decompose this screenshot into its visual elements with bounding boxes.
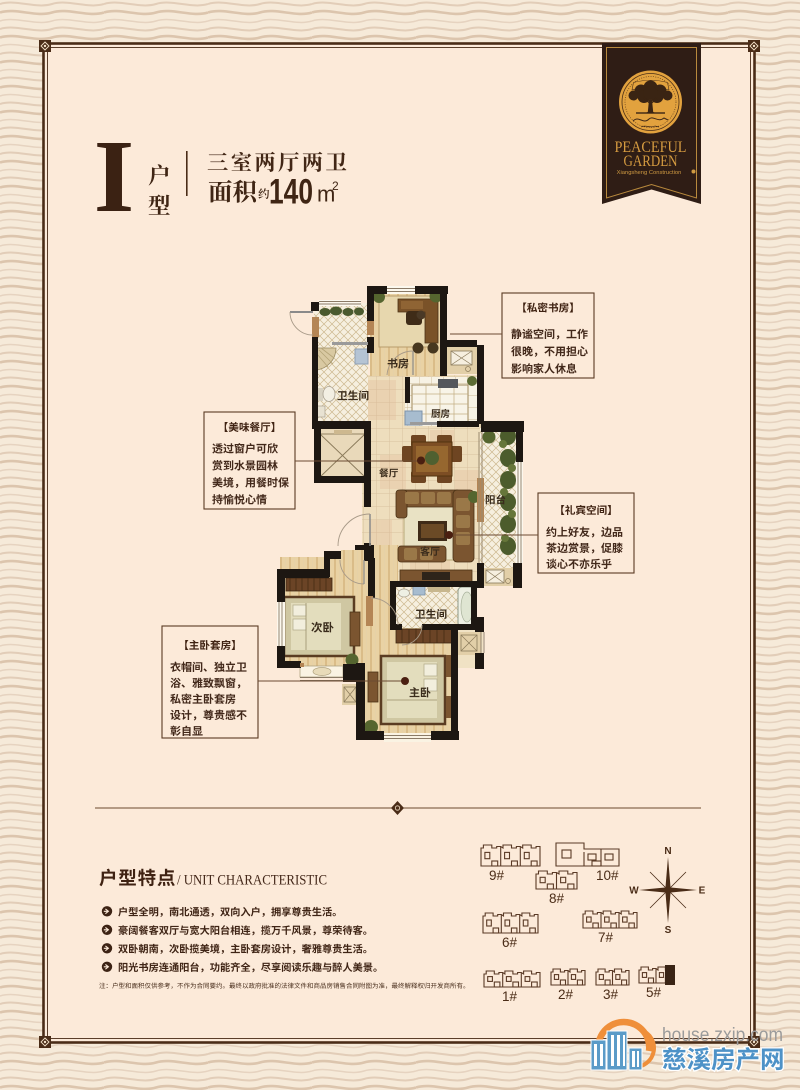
svg-text:1#: 1# <box>502 989 518 1004</box>
svg-text:W: W <box>629 886 639 897</box>
svg-text:3#: 3# <box>603 987 619 1002</box>
svg-text:N: N <box>664 846 671 857</box>
svg-text:2: 2 <box>332 179 339 193</box>
svg-text:9#: 9# <box>489 868 505 883</box>
svg-text:8#: 8# <box>549 891 565 906</box>
svg-text:2#: 2# <box>558 987 574 1002</box>
svg-text:/ UNIT CHARACTERISTIC: / UNIT CHARACTERISTIC <box>177 873 327 889</box>
svg-text:5#: 5# <box>646 985 662 1000</box>
svg-text:Xiangsheng Construction: Xiangsheng Construction <box>617 170 682 176</box>
svg-text:house.zxip.com: house.zxip.com <box>662 1024 783 1046</box>
svg-text:S: S <box>665 925 672 936</box>
svg-text:E: E <box>699 886 706 897</box>
svg-text:I: I <box>94 119 134 234</box>
svg-text:7#: 7# <box>598 930 614 945</box>
svg-text:6#: 6# <box>502 935 518 950</box>
svg-text:10#: 10# <box>596 868 619 883</box>
svg-text:GARDEN: GARDEN <box>624 153 678 170</box>
svg-text:140: 140 <box>269 173 313 212</box>
